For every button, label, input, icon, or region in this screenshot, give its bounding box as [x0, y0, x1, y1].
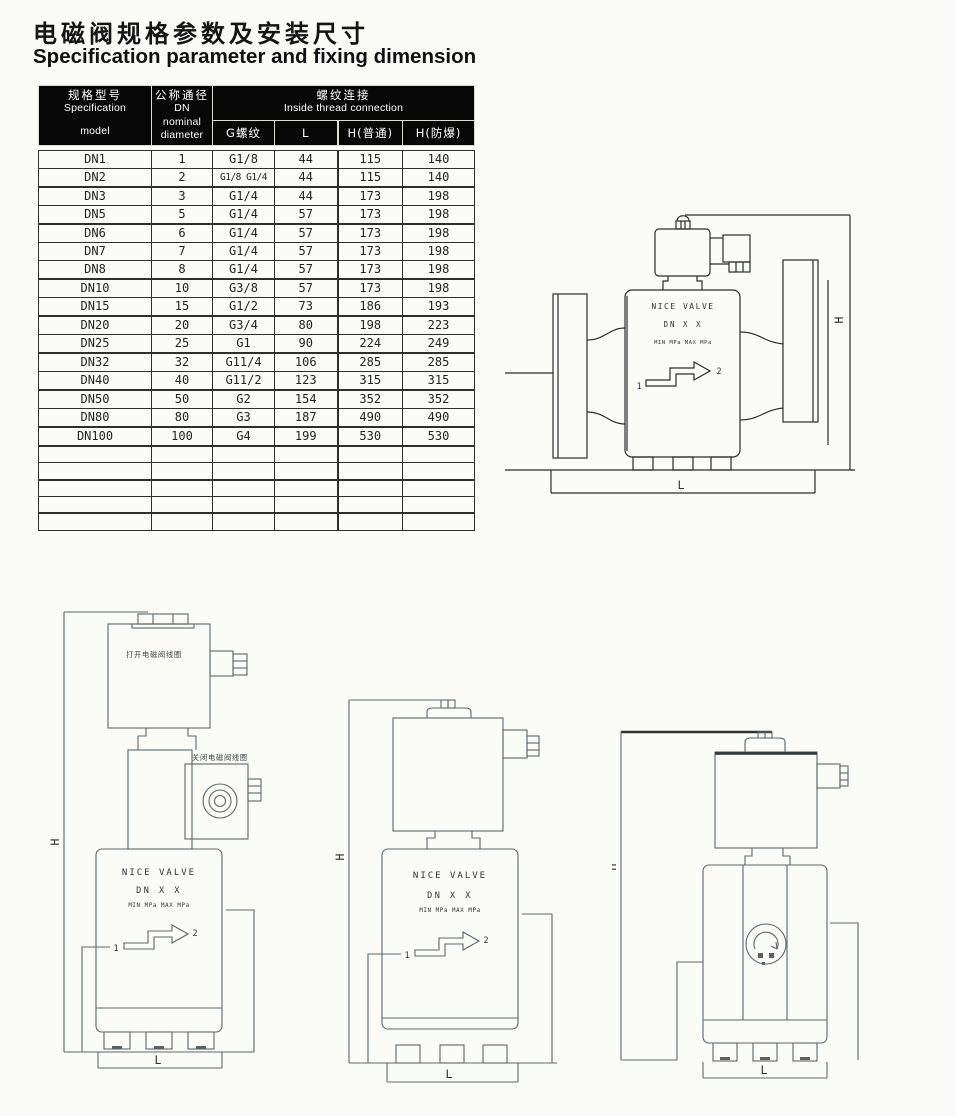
cell-g: G11/2 [213, 371, 275, 390]
cell-model: DN32 [39, 353, 152, 372]
col-header-model: 规格型号 Specification model [39, 86, 152, 146]
cell-h-ex: 223 [403, 316, 475, 335]
cell-l: 44 [275, 187, 338, 206]
solenoid-coil [655, 216, 750, 290]
cell-model: DN6 [39, 224, 152, 243]
cell-g: G3/4 [213, 316, 275, 335]
table-row: DN33G1/444173198 [39, 187, 475, 206]
cell-dn: 32 [152, 353, 213, 372]
cell-model: DN1 [39, 150, 152, 168]
cell-h-ex: 198 [403, 242, 475, 260]
cell-g: G1/8 [213, 150, 275, 168]
table-row: DN2525G190224249 [39, 334, 475, 353]
valve-body: NICE VALVE DN X X MIN MPa MAX MPa 1 2 [368, 849, 552, 1063]
col-header-model-zh: 规格型号 [39, 88, 151, 102]
cell-l: 57 [275, 205, 338, 224]
cell-h-normal: 173 [338, 279, 403, 298]
valve-tube [128, 750, 192, 849]
cell-h-normal: 173 [338, 242, 403, 260]
dimension-lines: H L [48, 612, 254, 1068]
empty-row [39, 446, 475, 463]
col-header-thread-zh: 螺纹连接 [213, 88, 474, 102]
pipe-leader-lines [677, 923, 858, 1060]
cell-h-ex: 530 [403, 427, 475, 446]
page: 电磁阀规格参数及安装尺寸 Specification parameter and… [0, 0, 956, 1116]
cell-l: 154 [275, 390, 338, 409]
cell-h-normal: 115 [338, 150, 403, 168]
coil-connector [210, 651, 247, 676]
cell-h-normal: 530 [338, 427, 403, 446]
cell-g: G1/2 [213, 297, 275, 316]
dimension-lines: H L [612, 732, 827, 1078]
table-row: DN100100G4199530530 [39, 427, 475, 446]
cell-g: G2 [213, 390, 275, 409]
col-header-dn-en: DN [152, 102, 212, 115]
cell-model: DN100 [39, 427, 152, 446]
port-2-label: 2 [716, 367, 721, 377]
cell-h-ex: 490 [403, 408, 475, 427]
cell-dn: 7 [152, 242, 213, 260]
cell-dn: 3 [152, 187, 213, 206]
cell-model: DN7 [39, 242, 152, 260]
right-flange [783, 260, 818, 422]
coil-connector [817, 764, 848, 788]
col-header-h-normal: H(普通) [338, 121, 403, 146]
solenoid-coil [393, 700, 539, 849]
coil-connector [710, 235, 750, 272]
cell-l: 80 [275, 316, 338, 335]
page-title-english: Specification parameter and fixing dimen… [33, 45, 476, 69]
dim-h-label: H [832, 316, 846, 323]
cell-l: 44 [275, 150, 338, 168]
cell-h-normal: 198 [338, 316, 403, 335]
drawing-valve-side-view: H L [612, 722, 912, 1104]
cell-h-ex: 198 [403, 279, 475, 298]
cell-model: DN20 [39, 316, 152, 335]
cell-h-normal: 315 [338, 371, 403, 390]
cell-model: DN50 [39, 390, 152, 409]
open-coil-label: 打开电磁阀线圈 [126, 650, 182, 659]
cell-dn: 1 [152, 150, 213, 168]
dim-l-label: L [761, 1063, 768, 1077]
dim-h-label: H [335, 853, 347, 860]
cell-model: DN2 [39, 168, 152, 187]
cell-h-normal: 352 [338, 390, 403, 409]
col-header-thread-group: 螺纹连接 Inside thread connection [213, 86, 475, 121]
drawing-single-coil-valve: H L NICE VALVE DN X X [335, 692, 570, 1094]
cell-model: DN80 [39, 408, 152, 427]
table-row: DN11G1/844115140 [39, 150, 475, 168]
cell-dn: 100 [152, 427, 213, 446]
cell-l: 44 [275, 168, 338, 187]
cell-h-ex: 249 [403, 334, 475, 353]
table-row: DN1010G3/857173198 [39, 279, 475, 298]
drawing-flanged-valve-front: H L NICE VALVE DN X X MIN MPa MAX MPa [505, 192, 955, 504]
cell-g: G3/8 [213, 279, 275, 298]
cell-l: 199 [275, 427, 338, 446]
valve-pressure-label: MIN MPa MAX MPa [419, 908, 480, 914]
valve-dn-label: DN X X [427, 891, 473, 901]
table-row: DN22G1/8 G1/444115140 [39, 168, 475, 187]
cell-h-ex: 198 [403, 224, 475, 243]
cell-h-normal: 173 [338, 224, 403, 243]
cell-dn: 6 [152, 224, 213, 243]
drawing-dual-coil-valve: H L 打开电磁阀线圈 关闭电磁阀线圈 [48, 602, 323, 1080]
port-2-label: 2 [192, 929, 197, 939]
table-row: DN4040G11/2123315315 [39, 371, 475, 390]
manual-override-dial [746, 924, 786, 965]
cell-model: DN15 [39, 297, 152, 316]
page-title-chinese: 电磁阀规格参数及安装尺寸 [33, 14, 369, 49]
cell-g: G1/4 [213, 242, 275, 260]
cell-dn: 5 [152, 205, 213, 224]
cell-dn: 20 [152, 316, 213, 335]
cell-l: 106 [275, 353, 338, 372]
close-solenoid-coil: 关闭电磁阀线圈 [185, 753, 261, 839]
pipe-leader-lines [368, 914, 552, 1063]
spec-table-body: DN11G1/844115140 DN22G1/8 G1/444115140 D… [38, 150, 475, 531]
coil-connector [503, 730, 539, 758]
dim-l-label: L [446, 1067, 453, 1081]
cell-dn: 80 [152, 408, 213, 427]
valve-body: NICE VALVE DN X X MIN MPa MAX MPa 1 2 [82, 849, 254, 1052]
valve-body: NICE VALVE DN X X MIN MPa MAX MPa 1 2 [625, 290, 740, 470]
flow-arrow-icon [415, 932, 479, 956]
cell-g: G3 [213, 408, 275, 427]
cell-dn: 2 [152, 168, 213, 187]
cell-model: DN5 [39, 205, 152, 224]
cell-h-ex: 285 [403, 353, 475, 372]
cell-dn: 10 [152, 279, 213, 298]
dim-h-label: H [48, 838, 62, 845]
valve-brand-label: NICE VALVE [122, 868, 196, 878]
cell-g: G1/4 [213, 260, 275, 279]
col-header-l: L [275, 121, 338, 146]
table-row: DN88G1/457173198 [39, 260, 475, 279]
dim-l-label: L [678, 478, 685, 492]
cell-g: G11/4 [213, 353, 275, 372]
col-header-dn-en2: nominal [152, 116, 212, 129]
cell-h-ex: 198 [403, 205, 475, 224]
port-1-label: 1 [404, 951, 409, 961]
left-flange [553, 294, 587, 458]
table-row: DN2020G3/480198223 [39, 316, 475, 335]
cell-model: DN25 [39, 334, 152, 353]
close-coil-label: 关闭电磁阀线圈 [192, 753, 248, 762]
open-solenoid-coil: 打开电磁阀线圈 [108, 614, 247, 750]
cell-h-normal: 285 [338, 353, 403, 372]
cell-h-ex: 315 [403, 371, 475, 390]
cell-h-normal: 173 [338, 260, 403, 279]
cell-h-ex: 193 [403, 297, 475, 316]
cell-dn: 15 [152, 297, 213, 316]
col-header-thread-en: Inside thread connection [213, 102, 474, 115]
col-header-g-thread: G螺纹 [213, 121, 275, 146]
dim-h-label: H [612, 863, 619, 870]
cell-dn: 25 [152, 334, 213, 353]
empty-row [39, 463, 475, 480]
empty-row [39, 480, 475, 497]
spec-table-area: 规格型号 Specification model 公称通径 DN nominal… [38, 85, 474, 531]
table-row: DN3232G11/4106285285 [39, 353, 475, 372]
cell-g: G1/4 [213, 187, 275, 206]
col-header-model-en: Specification [39, 102, 151, 115]
cell-l: 57 [275, 242, 338, 260]
cell-g: G1 [213, 334, 275, 353]
valve-body [677, 865, 858, 1061]
col-header-dn-en3: diameter [152, 129, 212, 142]
cell-model: DN3 [39, 187, 152, 206]
port-1-label: 1 [636, 382, 641, 392]
col-header-model-en2: model [39, 125, 151, 138]
cell-h-ex: 352 [403, 390, 475, 409]
table-row: DN5050G2154352352 [39, 390, 475, 409]
valve-brand-label: NICE VALVE [413, 871, 487, 881]
valve-pressure-label: MIN MPa MAX MPa [128, 903, 189, 909]
col-header-h-ex: H(防爆) [403, 121, 475, 146]
cell-h-normal: 115 [338, 168, 403, 187]
valve-brand-label: NICE VALVE [651, 302, 714, 311]
cell-h-ex: 140 [403, 150, 475, 168]
table-row: DN55G1/457173198 [39, 205, 475, 224]
cell-l: 123 [275, 371, 338, 390]
cell-g: G1/8 G1/4 [213, 168, 275, 187]
valve-dn-label: DN X X [136, 886, 182, 896]
cell-h-normal: 224 [338, 334, 403, 353]
solenoid-coil [715, 732, 848, 865]
cell-l: 57 [275, 224, 338, 243]
port-1-label: 1 [113, 944, 118, 954]
cell-h-normal: 186 [338, 297, 403, 316]
valve-dn-label: DN X X [663, 320, 702, 329]
cell-h-ex: 140 [403, 168, 475, 187]
empty-row [39, 513, 475, 530]
table-row: DN1515G1/273186193 [39, 297, 475, 316]
cell-l: 57 [275, 260, 338, 279]
col-header-dn-zh: 公称通径 [152, 88, 212, 102]
spec-table-header: 规格型号 Specification model 公称通径 DN nominal… [38, 85, 475, 146]
table-row: DN66G1/457173198 [39, 224, 475, 243]
cell-model: DN10 [39, 279, 152, 298]
cell-model: DN8 [39, 260, 152, 279]
cell-l: 73 [275, 297, 338, 316]
flow-arrow-icon [646, 362, 710, 386]
table-row: DN8080G3187490490 [39, 408, 475, 427]
cell-h-normal: 173 [338, 205, 403, 224]
col-header-dn: 公称通径 DN nominal diameter [152, 86, 213, 146]
dim-l-label: L [155, 1053, 162, 1067]
table-row: DN77G1/457173198 [39, 242, 475, 260]
cell-l: 90 [275, 334, 338, 353]
cell-h-ex: 198 [403, 187, 475, 206]
cell-h-ex: 198 [403, 260, 475, 279]
cell-dn: 40 [152, 371, 213, 390]
cell-g: G4 [213, 427, 275, 446]
cell-model: DN40 [39, 371, 152, 390]
port-2-label: 2 [483, 936, 488, 946]
empty-row [39, 496, 475, 513]
cell-dn: 50 [152, 390, 213, 409]
cell-l: 57 [275, 279, 338, 298]
cell-g: G1/4 [213, 205, 275, 224]
valve-pressure-label: MIN MPa MAX MPa [654, 340, 712, 346]
cell-dn: 8 [152, 260, 213, 279]
cell-h-normal: 490 [338, 408, 403, 427]
flow-arrow-icon [124, 925, 188, 949]
cell-l: 187 [275, 408, 338, 427]
cell-h-normal: 173 [338, 187, 403, 206]
cell-g: G1/4 [213, 224, 275, 243]
